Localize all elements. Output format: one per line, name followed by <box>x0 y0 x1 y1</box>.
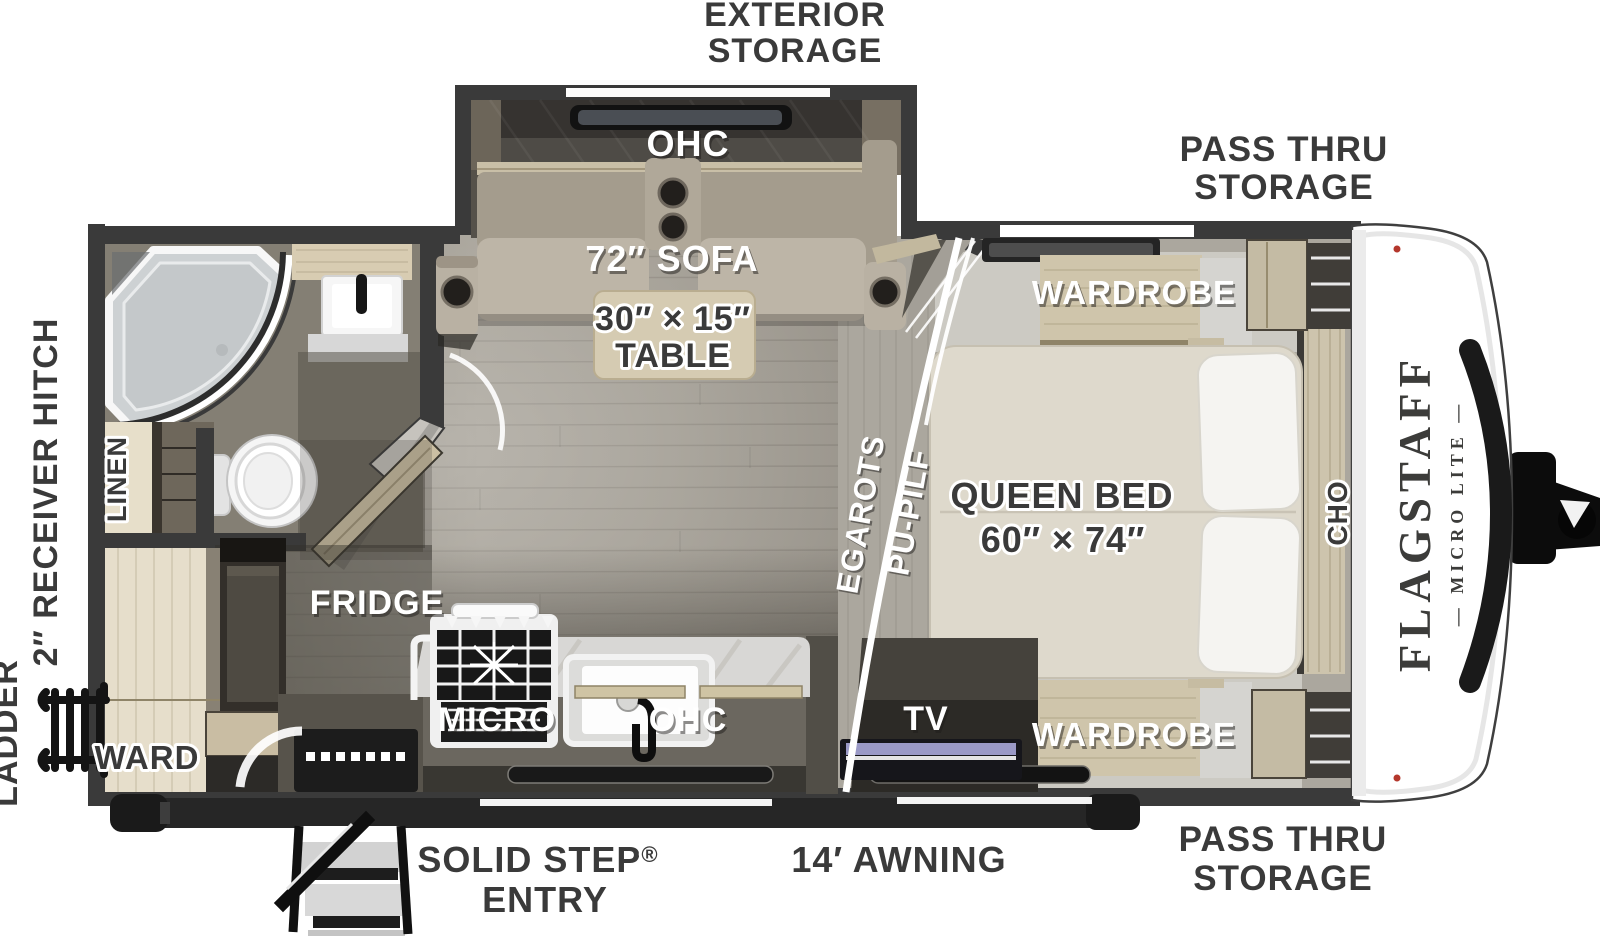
svg-text:EXTERIOR: EXTERIOR <box>704 0 886 34</box>
svg-text:72″ SOFA: 72″ SOFA <box>585 238 758 279</box>
svg-text:LINEN: LINEN <box>102 436 132 522</box>
svg-text:OHC: OHC <box>647 123 730 164</box>
svg-text:TV: TV <box>903 700 948 738</box>
svg-text:CHO: CHO <box>1322 480 1353 545</box>
svg-text:WARDROBE: WARDROBE <box>1032 274 1236 311</box>
svg-text:OHC: OHC <box>649 701 728 739</box>
svg-text:TABLE: TABLE <box>615 337 731 375</box>
svg-text:ENTRY: ENTRY <box>482 879 608 920</box>
svg-text:30″ × 15″: 30″ × 15″ <box>595 300 751 338</box>
svg-text:PASS THRU: PASS THRU <box>1179 820 1388 859</box>
svg-text:QUEEN BED: QUEEN BED <box>950 475 1173 516</box>
svg-text:— MICRO LITE —: — MICRO LITE — <box>1447 400 1467 628</box>
svg-text:PASS THRU: PASS THRU <box>1180 130 1389 169</box>
svg-text:SOLID STEP®: SOLID STEP® <box>417 839 658 880</box>
svg-text:STORAGE: STORAGE <box>708 32 883 70</box>
svg-text:STORAGE: STORAGE <box>1193 859 1372 898</box>
svg-text:FLAGSTAFF: FLAGSTAFF <box>1390 354 1440 672</box>
svg-text:WARD: WARD <box>95 739 200 776</box>
svg-text:2″ RECEIVER HITCH: 2″ RECEIVER HITCH <box>27 318 65 667</box>
svg-text:WARDROBE: WARDROBE <box>1032 716 1236 753</box>
svg-text:FRIDGE: FRIDGE <box>310 584 444 622</box>
svg-text:60″ × 74″: 60″ × 74″ <box>981 519 1146 560</box>
svg-text:14′ AWNING: 14′ AWNING <box>791 839 1006 880</box>
svg-text:MICRO: MICRO <box>438 701 556 739</box>
svg-text:STORAGE: STORAGE <box>1194 168 1373 207</box>
svg-text:LADDER: LADDER <box>0 659 25 807</box>
